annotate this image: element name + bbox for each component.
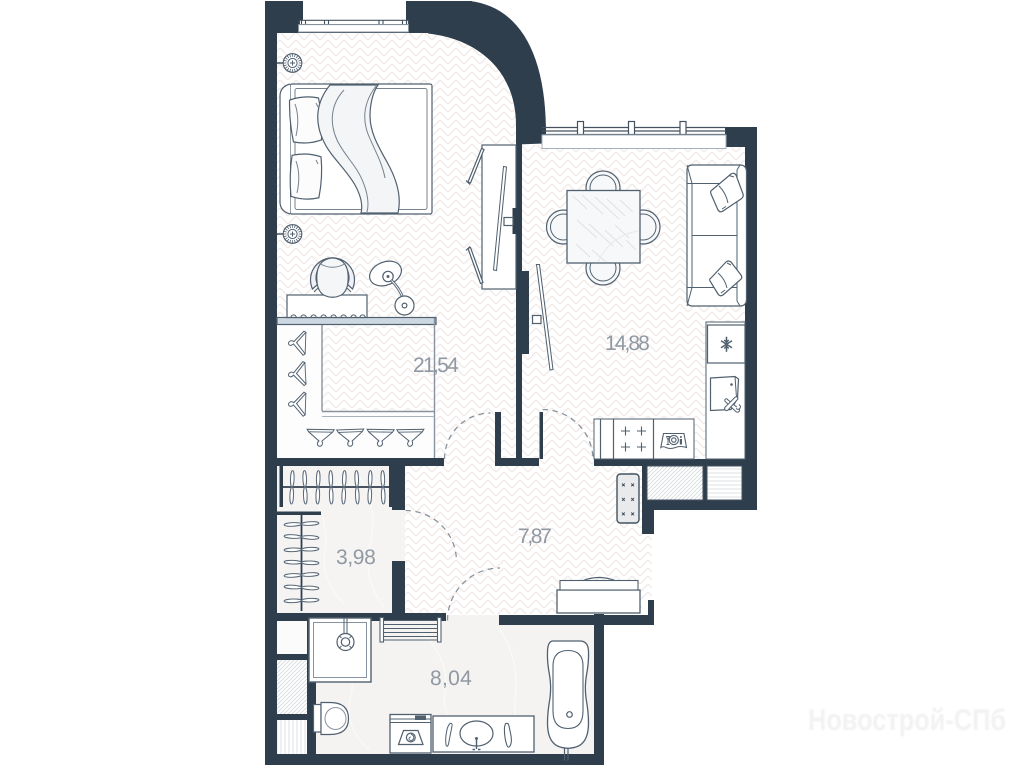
svg-text:7,87: 7,87 bbox=[518, 525, 552, 548]
svg-text:Новострой-СПб: Новострой-СПб bbox=[808, 704, 1006, 737]
svg-text:3,98: 3,98 bbox=[336, 546, 376, 569]
svg-text:21,54: 21,54 bbox=[413, 354, 459, 377]
svg-text:8,04: 8,04 bbox=[430, 667, 472, 690]
svg-text:14,88: 14,88 bbox=[605, 332, 650, 355]
